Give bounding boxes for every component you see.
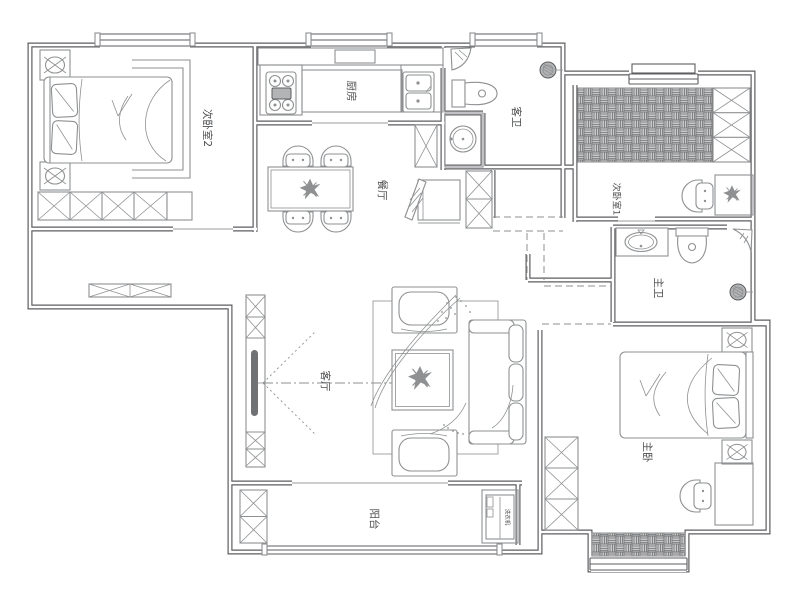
dining-chair xyxy=(283,211,313,232)
plant xyxy=(723,185,741,203)
duct-column xyxy=(466,171,492,228)
double-sink xyxy=(403,72,434,112)
window-bedroom1 xyxy=(629,64,698,84)
nightstand xyxy=(722,440,752,464)
room-label-guest-bathroom: 客卫 xyxy=(510,107,523,128)
room-bedroom-1: 次卧室1 xyxy=(578,88,753,215)
wardrobe xyxy=(545,437,578,530)
floor-plan: 次卧室2 厨房 xyxy=(0,0,800,600)
toilet xyxy=(676,228,708,263)
room-master-bedroom: 主卧 xyxy=(545,328,753,530)
nightstand xyxy=(40,162,70,190)
sofa xyxy=(469,320,526,444)
toilet xyxy=(452,80,497,107)
bay-window-seat-hatch xyxy=(592,533,685,556)
room-label-bedroom-2: 次卧室2 xyxy=(201,109,214,147)
room-balcony: 洗衣机 阳台 xyxy=(240,490,518,543)
floor-plan-svg: 次卧室2 厨房 xyxy=(0,0,800,600)
balcony-cabinet xyxy=(240,490,267,543)
tatami-mat xyxy=(578,88,713,162)
tv-cabinet xyxy=(246,295,265,467)
washbasin xyxy=(445,113,483,167)
room-label-master-bedroom: 主卧 xyxy=(641,442,654,463)
washing-machine: 洗衣机 xyxy=(482,490,518,543)
room-guest-bathroom: 客卫 xyxy=(445,48,563,167)
range-hood xyxy=(335,50,375,63)
gas-stove xyxy=(266,72,296,114)
double-bed xyxy=(620,352,753,438)
room-label-balcony: 阳台 xyxy=(368,509,381,530)
window-balcony xyxy=(262,544,502,556)
tv-screen xyxy=(251,350,258,416)
vanity-sink xyxy=(616,228,668,256)
desk-chair xyxy=(680,480,711,512)
dining-chair xyxy=(321,211,351,232)
bathroom-door xyxy=(733,229,752,252)
room-label-bedroom-1: 次卧室1 xyxy=(611,183,623,216)
desk-chair xyxy=(682,180,713,212)
dining-chair xyxy=(321,146,351,167)
floor-drain xyxy=(730,284,746,300)
room-label-living: 客厅 xyxy=(319,371,332,392)
window-guest-bathroom xyxy=(470,33,542,51)
nightstand xyxy=(722,328,752,352)
room-kitchen: 厨房 xyxy=(258,48,443,115)
duct-column xyxy=(415,125,437,167)
coffee-table xyxy=(392,350,453,410)
room-living: 客厅 xyxy=(246,287,526,476)
room-label-master-bathroom: 主卫 xyxy=(652,278,664,299)
hallway-dashed-lines xyxy=(493,217,611,324)
desk xyxy=(715,463,753,525)
double-bed xyxy=(44,77,172,163)
armchair xyxy=(392,430,457,476)
dining-chair xyxy=(283,146,313,167)
hall-bench xyxy=(89,284,171,297)
dining-table xyxy=(268,167,353,211)
room-label-kitchen: 厨房 xyxy=(345,81,358,102)
window-bedroom2 xyxy=(95,33,195,51)
wardrobe xyxy=(713,88,750,162)
room-dining: 餐厅 xyxy=(268,146,389,232)
nightstand xyxy=(40,50,70,80)
window-master-bay xyxy=(590,533,687,572)
desk-shelf xyxy=(715,175,753,215)
washing-machine-label: 洗衣机 xyxy=(504,509,512,526)
room-label-dining: 餐厅 xyxy=(376,180,389,201)
room-bedroom-2: 次卧室2 xyxy=(38,50,214,220)
floor-drain xyxy=(540,62,556,78)
room-master-bathroom: 主卫 xyxy=(616,228,753,300)
wardrobe xyxy=(38,192,192,220)
bathroom-door xyxy=(451,48,471,70)
